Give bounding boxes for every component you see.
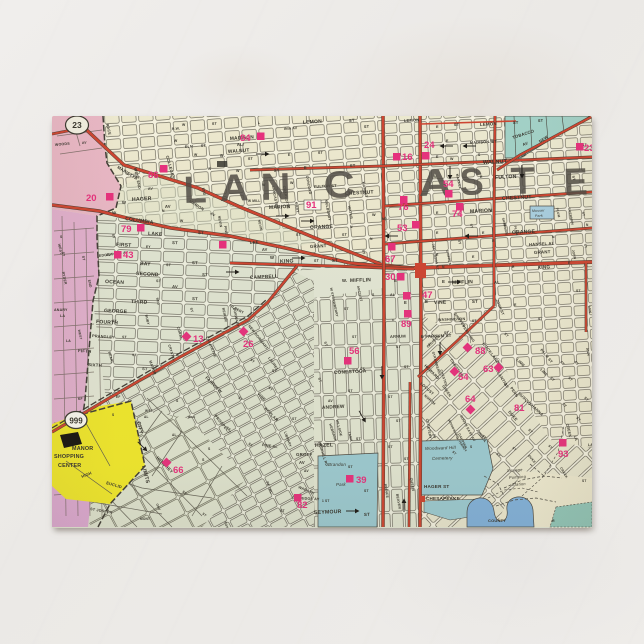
svg-text:ST: ST [202, 272, 208, 277]
svg-text:BAY: BAY [140, 261, 151, 268]
svg-text:W: W [122, 200, 126, 205]
svg-text:24: 24 [424, 140, 435, 151]
svg-text:MILl: MILl [382, 217, 390, 221]
svg-text:WSE: WSE [145, 409, 153, 413]
svg-text:AV: AV [106, 253, 111, 257]
svg-text:76: 76 [398, 202, 409, 213]
svg-text:W MILL: W MILL [248, 199, 261, 203]
svg-text:39: 39 [356, 475, 367, 486]
svg-text:AV: AV [328, 399, 333, 403]
svg-text:WSE: WSE [188, 415, 195, 419]
svg-text:LA: LA [588, 443, 592, 447]
svg-text:C: C [323, 164, 355, 207]
svg-text:63: 63 [483, 364, 494, 375]
svg-text:999: 999 [69, 417, 83, 426]
svg-text:EF: EF [116, 395, 120, 399]
svg-text:AV: AV [165, 204, 171, 209]
svg-text:MARION: MARION [470, 208, 493, 215]
svg-text:L: L [183, 169, 207, 212]
svg-text:AL: AL [494, 280, 500, 285]
svg-text:1 ST: 1 ST [322, 499, 330, 503]
svg-text:E: E [304, 165, 307, 170]
svg-text:COUNTY: COUNTY [488, 518, 506, 523]
svg-text:ANDREW: ANDREW [322, 404, 345, 411]
svg-text:S: S [202, 458, 205, 462]
svg-text:ST: ST [352, 335, 357, 339]
svg-text:Station: Station [512, 481, 527, 487]
svg-text:54: 54 [443, 179, 454, 190]
svg-text:E: E [490, 209, 493, 213]
svg-text:E: E [404, 300, 407, 305]
svg-text:OCEAN: OCEAN [105, 279, 125, 286]
svg-text:AV: AV [172, 284, 178, 289]
svg-text:GRANT: GRANT [310, 243, 327, 249]
svg-text:88: 88 [475, 346, 486, 357]
svg-text:N: N [370, 237, 373, 241]
svg-text:E: E [512, 265, 515, 269]
svg-text:N: N [490, 139, 493, 143]
svg-text:13: 13 [193, 334, 204, 345]
svg-text:64: 64 [465, 394, 476, 405]
svg-text:N: N [552, 235, 555, 239]
svg-text:54: 54 [458, 372, 469, 383]
svg-text:ST: ST [332, 258, 338, 263]
svg-text:ELM: ELM [185, 144, 193, 149]
svg-text:ST: ST [360, 367, 365, 371]
svg-text:x: x [392, 318, 394, 322]
svg-text:AV: AV [304, 469, 309, 473]
svg-text:AL: AL [144, 415, 149, 419]
svg-text:86: 86 [148, 170, 159, 181]
svg-text:LEMON: LEMON [404, 117, 420, 123]
svg-text:Cemetery: Cemetery [432, 455, 453, 461]
svg-text:R: R [552, 519, 555, 523]
svg-text:91: 91 [306, 200, 317, 211]
svg-text:74: 74 [452, 209, 463, 220]
svg-text:SEYMOUR: SEYMOUR [314, 509, 342, 516]
svg-text:N: N [350, 225, 353, 229]
svg-text:ST: ST [156, 279, 162, 283]
svg-text:S: S [470, 445, 472, 449]
svg-text:ST: ST [198, 230, 204, 235]
svg-text:E: E [446, 139, 449, 143]
svg-text:53: 53 [397, 223, 408, 234]
svg-text:ST: ST [212, 122, 218, 126]
svg-text:LA: LA [60, 314, 65, 318]
svg-text:ST: ST [538, 119, 544, 123]
svg-text:79: 79 [121, 224, 132, 235]
svg-text:CHESAPEAKE: CHESAPEAKE [426, 496, 460, 501]
svg-text:ST: ST [201, 144, 207, 148]
svg-text:VINE: VINE [434, 300, 447, 306]
svg-text:MANOR: MANOR [72, 446, 93, 452]
svg-text:SIXTH: SIXTH [88, 362, 102, 368]
svg-text:E: E [436, 211, 439, 215]
svg-text:ST: ST [272, 369, 278, 373]
svg-text:CENTER: CENTER [58, 463, 81, 469]
svg-text:GRANT: GRANT [534, 249, 551, 255]
svg-text:E: E [436, 253, 439, 257]
svg-text:MONT: MONT [140, 517, 150, 521]
svg-text:AV: AV [299, 460, 305, 465]
svg-text:ST: ST [404, 457, 409, 461]
svg-text:20: 20 [86, 193, 97, 204]
svg-text:S: S [112, 413, 114, 417]
svg-text:84: 84 [240, 133, 251, 144]
svg-text:89: 89 [401, 319, 412, 330]
svg-text:FIRST: FIRST [116, 242, 132, 249]
svg-text:ST: ST [172, 240, 178, 245]
svg-text:N: N [162, 209, 165, 213]
svg-text:ST: ST [296, 233, 302, 237]
svg-text:E: E [482, 231, 485, 235]
svg-text:SHOPPING: SHOPPING [54, 454, 84, 460]
svg-text:SECOND: SECOND [136, 271, 159, 278]
svg-text:KING: KING [280, 259, 294, 265]
svg-text:Brandon: Brandon [328, 462, 346, 467]
svg-text:N: N [260, 166, 291, 209]
svg-text:67: 67 [385, 254, 396, 265]
svg-text:Park: Park [336, 482, 346, 487]
svg-text:ARNUM: ARNUM [390, 333, 407, 339]
svg-text:W.: W. [220, 153, 225, 158]
svg-text:ST: ST [513, 120, 519, 125]
svg-text:A: A [219, 167, 249, 210]
svg-text:ST: ST [364, 489, 369, 493]
svg-text:ST: ST [444, 331, 449, 335]
svg-text:S: S [459, 161, 484, 204]
svg-text:KING: KING [538, 264, 551, 270]
svg-text:HAGER ST: HAGER ST [424, 484, 449, 489]
svg-text:E: E [436, 155, 439, 159]
svg-text:Musser: Musser [532, 209, 545, 213]
svg-text:E: E [568, 261, 571, 265]
svg-text:ST: ST [404, 365, 409, 369]
svg-text:W: W [112, 210, 117, 215]
svg-text:47: 47 [422, 290, 433, 301]
svg-text:E: E [563, 161, 588, 204]
svg-text:R.W.: R.W. [172, 126, 180, 131]
svg-text:FIFTH: FIFTH [78, 348, 92, 354]
svg-text:THIRD: THIRD [131, 299, 148, 306]
svg-text:N: N [442, 265, 445, 269]
svg-text:ST: ST [292, 417, 297, 421]
svg-text:ST: ST [582, 479, 586, 483]
svg-text:ST: ST [192, 260, 198, 265]
svg-text:30: 30 [385, 272, 396, 283]
svg-text:ST: ST [454, 123, 460, 127]
svg-text:ST: ST [396, 419, 401, 423]
svg-text:W: W [450, 157, 454, 161]
svg-text:HAGER: HAGER [132, 196, 152, 203]
svg-text:E: E [472, 255, 475, 259]
svg-text:GEORGE: GEORGE [104, 308, 128, 315]
svg-text:ST: ST [388, 395, 393, 399]
svg-text:ST: ST [349, 118, 355, 123]
svg-text:AV: AV [148, 187, 154, 191]
svg-text:LEE: LEE [250, 240, 259, 245]
svg-text:E: E [514, 303, 517, 307]
svg-text:EY: EY [146, 245, 151, 249]
svg-text:E: E [436, 231, 439, 235]
svg-text:AV: AV [82, 141, 88, 145]
svg-text:Park: Park [535, 214, 543, 218]
svg-text:KF: KF [78, 397, 83, 401]
svg-text:E: E [436, 125, 439, 129]
svg-text:ST: ST [472, 299, 478, 304]
svg-text:ORANGE: ORANGE [310, 224, 334, 231]
svg-text:ST: ST [538, 317, 543, 321]
svg-text:ST: ST [388, 445, 393, 449]
svg-text:MIFFLIN: MIFFLIN [350, 277, 372, 284]
svg-text:23: 23 [584, 143, 592, 154]
svg-text:56: 56 [349, 346, 360, 357]
svg-text:ST: ST [314, 259, 320, 263]
svg-text:ANARY: ANARY [54, 308, 68, 312]
svg-text:LAKE: LAKE [148, 231, 163, 238]
svg-text:AL: AL [172, 433, 177, 437]
svg-text:AV: AV [170, 175, 176, 179]
svg-text:LA: LA [66, 339, 71, 343]
svg-text:26: 26 [243, 339, 254, 350]
svg-text:W: W [180, 219, 184, 223]
svg-text:16: 16 [402, 152, 413, 163]
svg-text:ST: ST [318, 151, 324, 155]
svg-text:W.: W. [342, 278, 347, 283]
svg-text:66: 66 [173, 465, 184, 476]
svg-text:AV: AV [262, 247, 268, 252]
svg-text:MIFFLIN: MIFFLIN [452, 279, 474, 286]
svg-text:ST: ST [576, 289, 581, 293]
svg-text:ST: ST [344, 307, 349, 311]
svg-text:93: 93 [558, 449, 569, 460]
svg-text:T: T [510, 160, 535, 203]
svg-text:ST: ST [192, 296, 198, 301]
svg-text:43: 43 [123, 250, 134, 261]
svg-text:ST: ST [396, 345, 401, 349]
svg-text:W: W [270, 255, 274, 260]
svg-text:GROFF: GROFF [296, 452, 312, 457]
svg-text:E: E [492, 238, 495, 243]
svg-text:ST: ST [142, 366, 148, 371]
svg-text:ST: ST [280, 509, 285, 513]
svg-text:ST: ST [248, 157, 254, 161]
svg-text:E: E [442, 279, 445, 284]
svg-text:ST: ST [342, 233, 348, 237]
svg-text:W: W [372, 213, 376, 217]
svg-text:ST: ST [356, 437, 361, 441]
svg-text:AL: AL [390, 293, 396, 297]
svg-text:ST: ST [364, 125, 370, 129]
svg-text:ST: ST [348, 389, 353, 393]
svg-text:23: 23 [72, 120, 82, 130]
svg-text:81: 81 [514, 403, 525, 414]
svg-text:ST: ST [348, 465, 353, 469]
svg-text:LEMON: LEMON [480, 121, 497, 127]
svg-text:82: 82 [297, 500, 308, 511]
svg-text:ST: ST [166, 263, 172, 267]
svg-text:ST: ST [364, 512, 370, 517]
